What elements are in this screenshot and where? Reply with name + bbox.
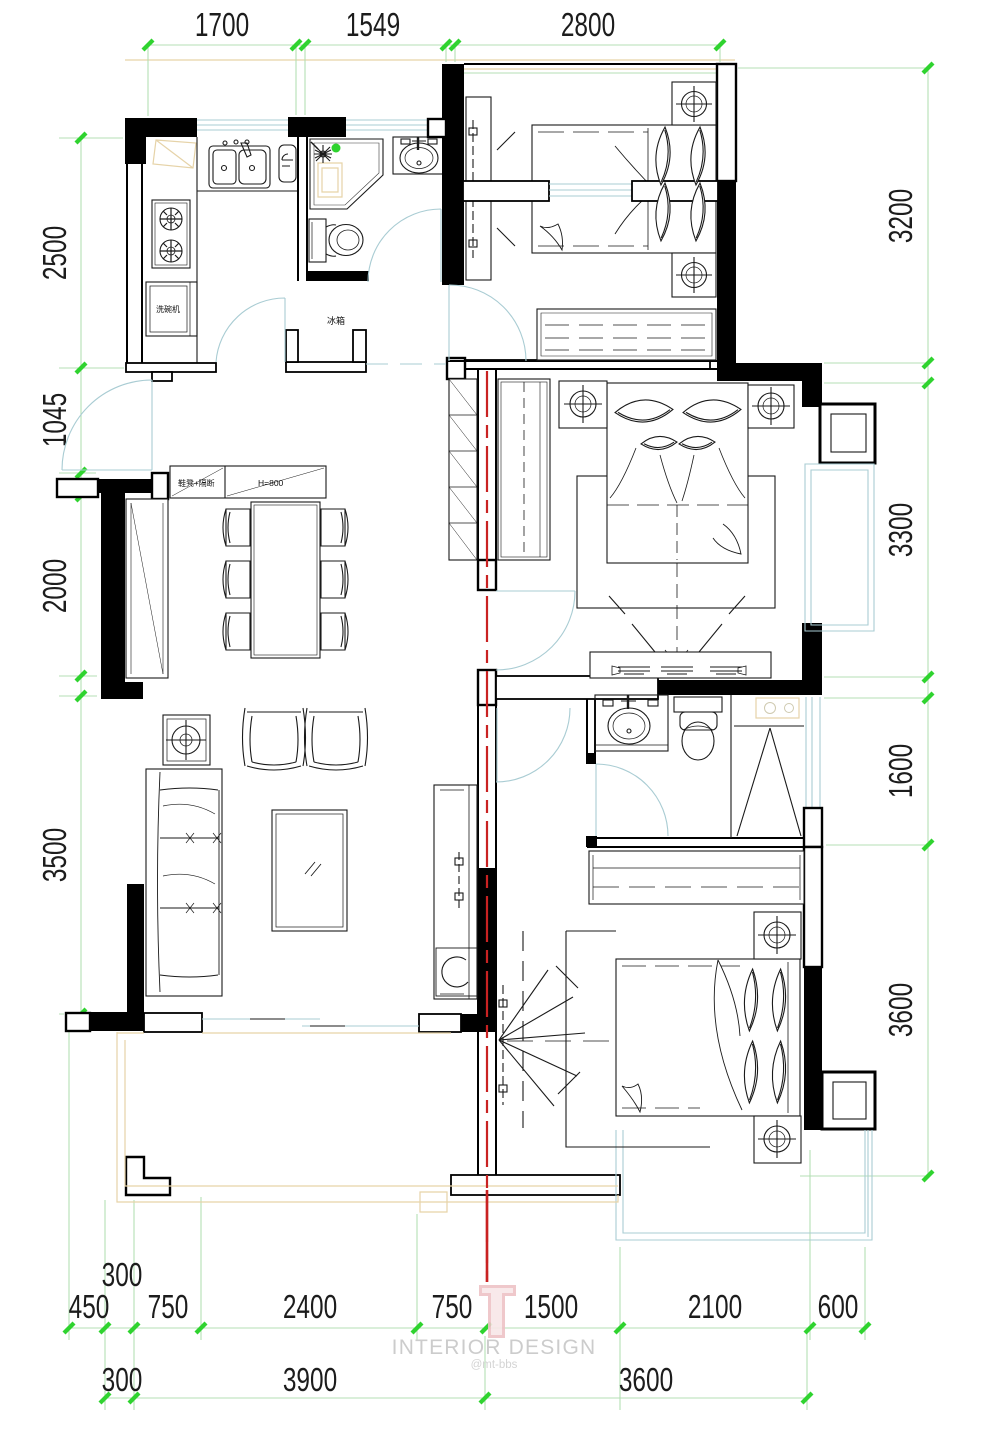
svg-text:1700: 1700 xyxy=(195,8,249,44)
svg-text:3500: 3500 xyxy=(38,828,74,882)
svg-text:3300: 3300 xyxy=(884,503,920,557)
svg-text:3900: 3900 xyxy=(283,1363,337,1399)
svg-text:1600: 1600 xyxy=(884,744,920,798)
svg-text:3200: 3200 xyxy=(884,189,920,243)
svg-text:H=800: H=800 xyxy=(258,478,284,488)
svg-text:1549: 1549 xyxy=(346,8,400,44)
svg-text:2800: 2800 xyxy=(561,8,615,44)
svg-text:2400: 2400 xyxy=(283,1290,337,1326)
svg-text:300: 300 xyxy=(102,1258,143,1294)
svg-text:1045: 1045 xyxy=(38,393,74,447)
svg-text:3600: 3600 xyxy=(884,983,920,1037)
svg-text:450: 450 xyxy=(69,1290,110,1326)
svg-text:1500: 1500 xyxy=(524,1290,578,1326)
svg-text:600: 600 xyxy=(818,1290,859,1326)
svg-text:3600: 3600 xyxy=(619,1363,673,1399)
svg-text:冰箱: 冰箱 xyxy=(327,315,345,326)
svg-text:洗碗机: 洗碗机 xyxy=(156,304,180,314)
svg-text:INTERIOR DESIGN: INTERIOR DESIGN xyxy=(392,1336,597,1359)
svg-text:750: 750 xyxy=(148,1290,189,1326)
svg-text:鞋凳+隔断: 鞋凳+隔断 xyxy=(178,478,215,488)
svg-text:@mt-bbs: @mt-bbs xyxy=(471,1359,518,1371)
svg-text:2100: 2100 xyxy=(688,1290,742,1326)
svg-text:2500: 2500 xyxy=(38,226,74,280)
svg-text:300: 300 xyxy=(102,1363,143,1399)
svg-text:750: 750 xyxy=(432,1290,473,1326)
svg-text:2000: 2000 xyxy=(38,559,74,613)
